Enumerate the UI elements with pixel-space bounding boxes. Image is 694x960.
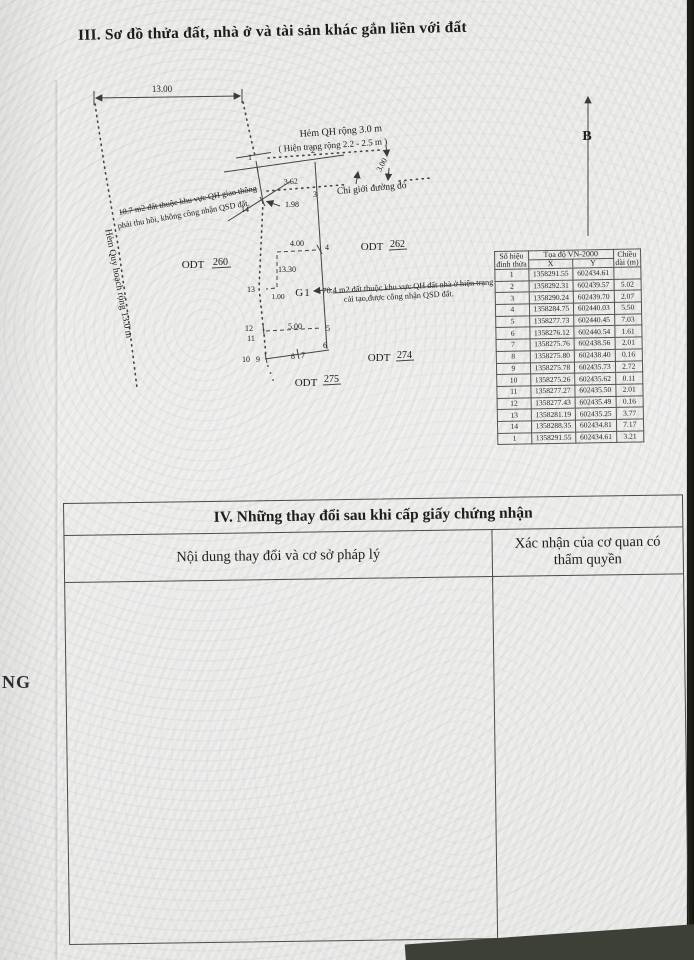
coord-cell: 602434.81 [576, 419, 617, 431]
coord-cell: 602435.49 [575, 396, 616, 408]
vertex-label: 12 [245, 324, 253, 333]
svg-text:ODT: ODT [295, 377, 318, 389]
dashed-setback-line [266, 255, 277, 289]
vertex-label: 11 [247, 334, 255, 343]
dimension-label: 1.00 [271, 292, 284, 301]
svg-text:274: 274 [397, 350, 412, 361]
coord-cell: 7 [496, 339, 530, 351]
vertex-label: 9 [256, 355, 260, 364]
street-edge-lines [224, 153, 344, 173]
coord-cell: 1358291.55 [528, 268, 573, 280]
coord-cell: 6 [496, 327, 530, 339]
coord-cell: 1358275.26 [530, 373, 575, 385]
coord-cell: 13 [497, 409, 531, 421]
section4-content-cell [65, 577, 498, 944]
vertex-label: 4 [325, 243, 329, 252]
coord-cell: 1358281.19 [531, 408, 576, 420]
coord-cell: 1358275.78 [530, 362, 575, 374]
vertex-label: 1 [248, 153, 252, 162]
coord-row: 11358291.55602434.613.21 [498, 431, 644, 445]
coord-cell: 7.03 [614, 314, 642, 326]
coord-cell: 1358290.24 [529, 291, 574, 303]
dimension-label: 4.00 [290, 239, 304, 248]
coord-cell: 602434.61 [573, 267, 614, 279]
vertex-label: 13 [247, 285, 255, 294]
coord-cell: 0.16 [616, 395, 644, 407]
coord-cell: 0.11 [615, 372, 643, 384]
coord-cell: 1358277.27 [531, 385, 576, 397]
svg-text:260: 260 [213, 257, 228, 268]
odt-label-275: ODT 275 [295, 374, 341, 389]
coord-cell: 11 [497, 386, 531, 398]
vertex-label: 14 [241, 205, 249, 214]
svg-text:275: 275 [324, 374, 339, 385]
coord-cell: 3.21 [616, 431, 644, 443]
coord-cell: 3.77 [616, 407, 644, 419]
coord-cell: 7.17 [616, 419, 644, 431]
coord-table-body: 11358291.55602434.6121358292.31602439.57… [495, 267, 644, 445]
svg-text:262: 262 [390, 239, 405, 250]
coord-cell: 9 [496, 362, 530, 374]
coord-cell: 602435.50 [575, 384, 616, 396]
coord-cell: 0.16 [615, 349, 643, 361]
coord-cell: 602435.25 [575, 408, 616, 420]
vertex-label: 6 [323, 341, 327, 350]
coord-cell: 4 [495, 304, 529, 316]
coord-cell: 2.07 [614, 290, 642, 302]
coordinate-table: Số hiệu đỉnh thửa Tọa độ VN-2000 Chiều d… [494, 248, 644, 445]
vertex-label: 5 [326, 324, 330, 333]
coord-cell: 602435.62 [575, 373, 616, 385]
coord-header-vertex: Số hiệu đỉnh thửa [495, 251, 529, 270]
coord-cell: 12 [497, 397, 531, 409]
odt-label-274: ODT 274 [368, 350, 414, 364]
vertex-label: 7 [301, 351, 305, 360]
vertex-label: 8 [291, 352, 295, 361]
coord-cell: 5.50 [614, 302, 642, 314]
scanned-certificate-page: III. Sơ đồ thửa đất, nhà ở và tài sản kh… [0, 0, 694, 960]
coord-cell: 602434.61 [576, 431, 617, 443]
coord-cell: 2.01 [615, 337, 643, 349]
dimension-label: 13.30 [278, 265, 296, 274]
coord-cell: 1358277.73 [529, 315, 574, 327]
coord-cell: 8 [496, 351, 530, 363]
coord-cell: 1358292.31 [529, 280, 574, 292]
margin-bleed-text: NG [2, 672, 31, 693]
coord-cell: 2 [495, 281, 529, 293]
coord-cell: 1.61 [614, 325, 642, 337]
coord-cell: 2.01 [615, 384, 643, 396]
coord-cell: 602438.40 [574, 349, 615, 361]
street-width-label: ( Hiện trạng rộng 2.2 - 2.5 m ) [278, 136, 387, 154]
coord-cell: 14 [497, 421, 531, 433]
section4-confirm-cell [493, 574, 688, 938]
coord-cell: 1 [498, 433, 532, 445]
dimension-label: 3.00 [375, 157, 390, 174]
coord-cell: 602439.70 [573, 291, 614, 303]
dimension-label: 5.00 [288, 322, 302, 331]
coord-cell [613, 267, 641, 279]
odt-label-260: ODT 260 [182, 257, 231, 271]
paper-background: III. Sơ đồ thửa đất, nhà ở và tài sản kh… [0, 0, 687, 960]
section4-table: IV. Những thay đổi sau khi cấp giấy chứn… [63, 494, 689, 945]
planned-alley-boundary [95, 102, 255, 388]
dimension-label: 13.00 [152, 84, 173, 94]
coord-cell: 602435.73 [575, 361, 616, 373]
coord-cell: 602438.56 [574, 338, 615, 350]
coord-cell: 2.72 [615, 360, 643, 372]
coord-cell: 602439.57 [573, 279, 614, 291]
coord-cell: 1358288.35 [531, 420, 576, 432]
coord-header-length: Chiều dài (m) [613, 249, 641, 267]
section4-col-content-header: Nội dung thay đổi và cơ sở pháp lý [64, 530, 493, 582]
dimension-13m: 13.00 [94, 84, 242, 105]
coord-cell: 1358284.75 [529, 303, 574, 315]
coord-cell: 1358275.76 [530, 338, 575, 350]
coord-cell: 5.02 [614, 279, 642, 291]
red-line-label: Chỉ giới đường đỏ [337, 181, 408, 197]
svg-text:ODT: ODT [361, 241, 384, 253]
coord-cell: 602440.03 [574, 302, 615, 314]
svg-text:ODT: ODT [368, 352, 391, 364]
dimension-label: 1.98 [285, 200, 299, 209]
coord-cell: 10 [497, 374, 531, 386]
svg-text:ODT: ODT [182, 259, 205, 271]
parcel-g1-label: G1 [295, 287, 310, 299]
coord-cell: 1358275.80 [530, 350, 575, 362]
vertex-label: 10 [242, 355, 250, 364]
coord-cell: 1358276.12 [529, 327, 574, 339]
coord-cell: 1358291.55 [531, 432, 576, 444]
photo-background-right-edge [686, 0, 694, 960]
odt-label-262: ODT 262 [361, 239, 407, 253]
coord-cell: 3 [495, 292, 529, 304]
north-label: B [582, 129, 591, 144]
coord-cell: 1358277.43 [531, 397, 576, 409]
coord-cell: 602440.54 [574, 326, 615, 338]
coord-cell: 1 [495, 269, 529, 281]
coord-cell: 602440.45 [574, 314, 615, 326]
section4-col-confirm-header: Xác nhận của cơ quan có thẩm quyền [492, 527, 683, 576]
coord-cell: 5 [496, 316, 530, 328]
alley-left-label: Hẻm Quy hoạch rộng 13.0 m [102, 228, 133, 339]
